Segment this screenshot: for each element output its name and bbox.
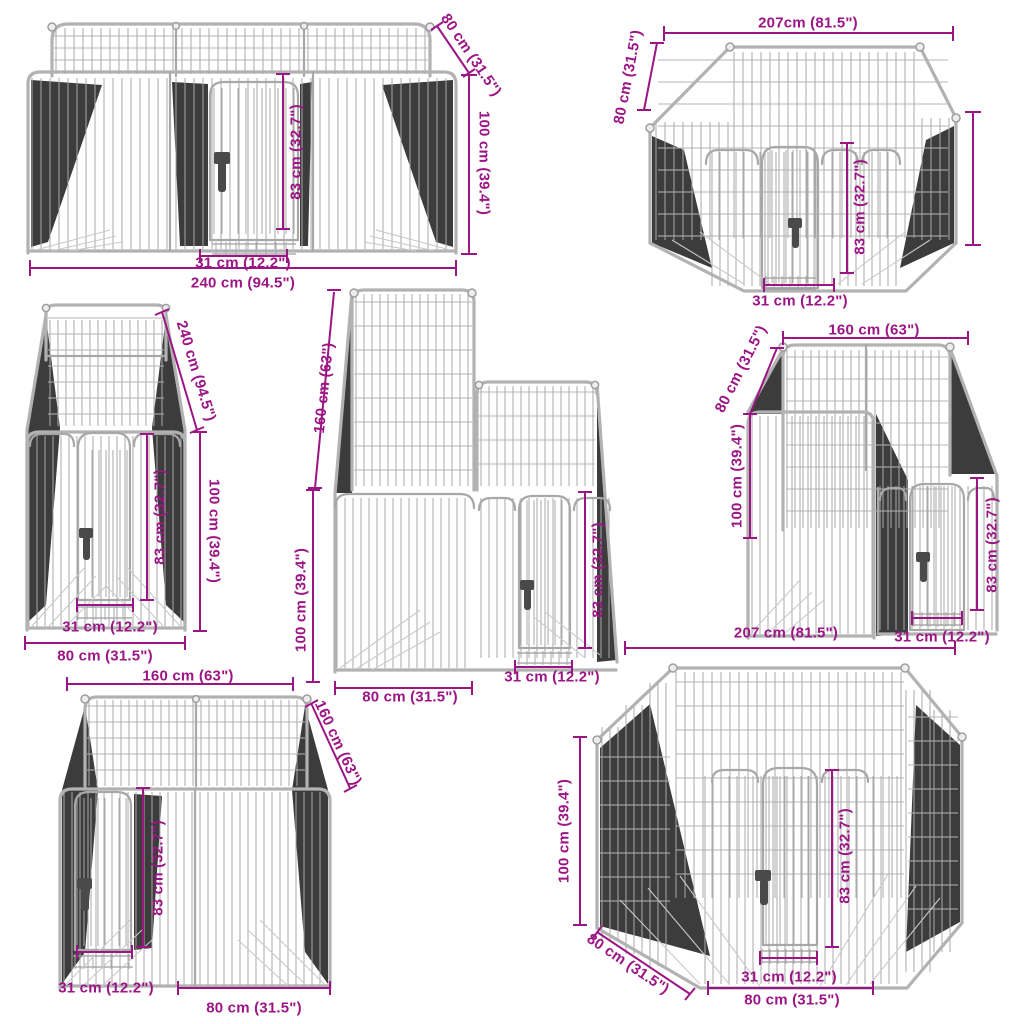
dim-label-height: 100 cm (39.4") — [729, 424, 746, 528]
dim-label-door-width: 31 cm (12.2") — [752, 293, 848, 310]
dim-label-width: 207cm (81.5") — [758, 15, 858, 32]
dim-label-door-width: 31 cm (12.2") — [741, 969, 837, 986]
product-dimensions-diagram: 80 cm (31.5") 100 cm (39.4") 83 cm (32.7… — [0, 0, 1024, 1024]
pen-figure-2 — [646, 43, 960, 291]
pen-figure-4 — [335, 289, 617, 672]
dim-label-width: 80 cm (31.5") — [362, 689, 458, 706]
dim-label-door-height: 83 cm (32.7") — [150, 820, 167, 916]
dim-label-width: 240 cm (94.5") — [191, 275, 295, 292]
dim-label-height: 100 cm (39.4") — [476, 111, 493, 215]
dim-label-door-height: 83 cm (32.7") — [288, 104, 305, 200]
dim-label-width: 80 cm (31.5") — [206, 1000, 302, 1017]
dim-label-width: 160 cm (63") — [828, 322, 919, 339]
dim-label-width: 160 cm (63") — [142, 668, 233, 685]
dim-label-height: 100 cm (39.4") — [293, 548, 310, 652]
dim-label-height: 100 cm (39.4") — [556, 779, 573, 883]
dim-label-door-width: 31 cm (12.2") — [195, 255, 291, 272]
pen-figure-3 — [27, 304, 185, 630]
dim-label-panel-width: 80 cm (31.5") — [744, 992, 840, 1009]
dim-label-door-height: 83 cm (32.7") — [984, 497, 1001, 593]
dim-label-width: 80 cm (31.5") — [57, 648, 153, 665]
dim-label-door-height: 83 cm (32.7") — [590, 522, 607, 618]
dim-label-width: 207 cm (81.5") — [734, 625, 838, 642]
pen-figure-5 — [746, 343, 997, 638]
dim-label-door-height: 83 cm (32.7") — [837, 808, 854, 904]
pen-figure-6 — [60, 695, 330, 988]
dim-label-height: 100 cm (39.4") — [206, 479, 223, 583]
dim-label-door-height: 83 cm (32.7") — [152, 469, 169, 565]
dim-label-door-width: 31 cm (12.2") — [62, 619, 158, 636]
pen-figure-7 — [593, 664, 966, 988]
dim-label-door-width: 31 cm (12.2") — [504, 669, 600, 686]
dim-label-door-height: 83 cm (32.7") — [852, 159, 869, 255]
dim-label-door-width: 31 cm (12.2") — [894, 629, 990, 646]
pen-figure-1 — [28, 23, 456, 256]
dim-label-door-width: 31 cm (12.2") — [58, 980, 154, 997]
